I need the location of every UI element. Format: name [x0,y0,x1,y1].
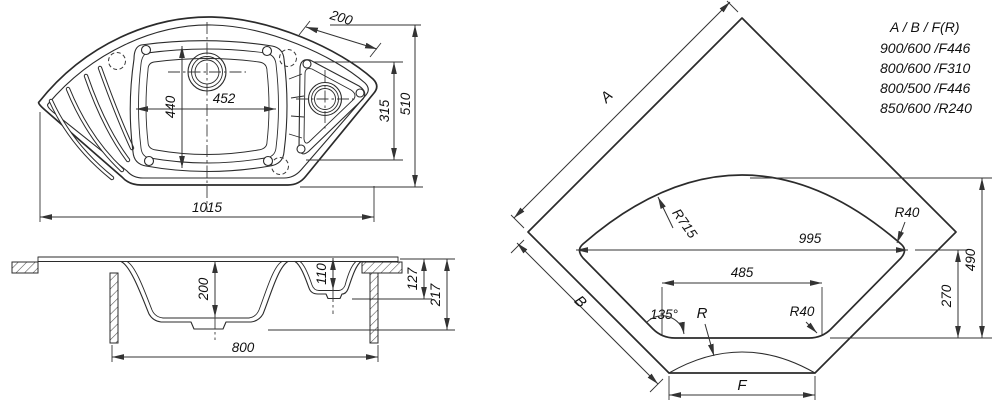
size-table-header: A / B / F(R) [889,19,959,35]
sink-drawing-canvas: 1015 510 315 200 440 452 [0,0,1000,415]
dim-cutout-depth: 490 [963,248,978,271]
dim-fillet-right: R40 [895,205,920,220]
size-table-row: 900/600 /F446 [880,40,971,56]
dim-main-bowl-depth: 200 [196,277,211,301]
technical-drawing-page: 1015 510 315 200 440 452 [0,0,1000,415]
dim-overall-width: 1015 [192,200,223,215]
dim-front-f: F [737,377,747,394]
dim-total-height: 217 [428,283,443,307]
dim-overall-depth: 510 [398,92,413,115]
section-view: 200 110 127 217 800 [12,257,455,362]
dim-small-bowl-depth: 110 [314,263,329,285]
dim-rim-to-base: 127 [405,267,420,290]
bowl-divider-lines [289,74,304,138]
dim-main-bowl-length: 440 [163,95,178,118]
drainboard-grooves [51,68,132,178]
dim-right-bowl-depth: 315 [377,99,392,122]
main-bowl [130,41,287,172]
front-edge-arc [669,352,815,373]
dim-back-radius: R715 [669,206,700,241]
dim-cabinet-width: 800 [232,340,255,355]
dim-main-bowl-width: 452 [213,91,236,106]
faucet-holes [109,50,297,175]
countertop-and-cabinet [12,262,402,343]
size-table-row: 850/600 /R240 [880,100,972,116]
dim-fillet-front: R40 [790,304,815,319]
top-view-dimensions: 1015 510 315 200 440 452 [40,7,423,222]
sink-profile [38,257,398,329]
sink-cutout-outline [580,175,905,338]
dim-front-height: 270 [939,284,954,308]
size-table: A / B / F(R) 900/600 /F446 800/600 /F310… [880,19,972,116]
dim-side-b: B [571,292,590,311]
size-table-row: 800/600 /F310 [880,60,971,76]
dim-side-a: A [597,87,617,107]
top-view: 1015 510 315 200 440 452 [39,7,423,222]
dim-cutout-width: 995 [799,231,822,246]
section-dimensions: 200 110 127 217 800 [112,258,455,362]
size-table-row: 800/500 /F446 [880,80,971,96]
dim-cutout-front-width: 485 [731,265,754,280]
small-bowl [296,60,365,154]
dim-front-radius: R [697,305,708,322]
